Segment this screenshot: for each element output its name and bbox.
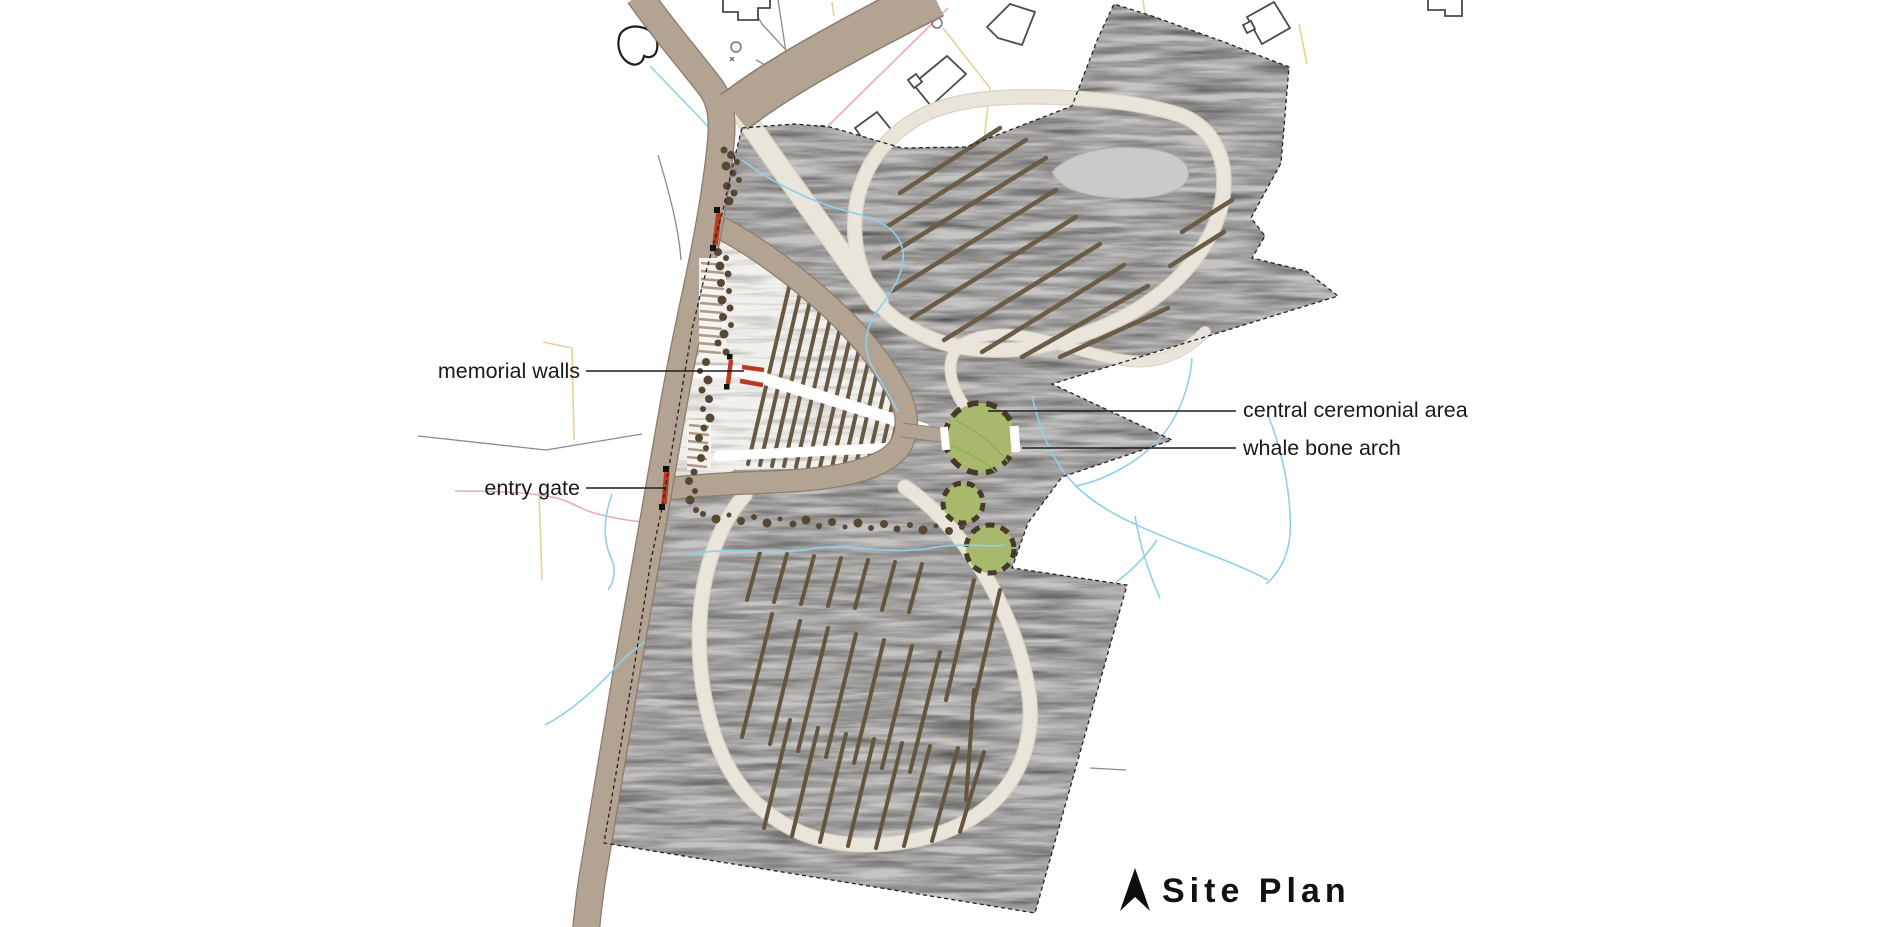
memorial-wall-bar-1 [742, 367, 764, 370]
annotation-entry-gate: entry gate [420, 477, 580, 500]
site-plan-drawing [0, 0, 1900, 927]
site-plan-page: memorial walls entry gate central ceremo… [0, 0, 1900, 927]
annotation-central-ceremonial-area: central ceremonial area [1243, 399, 1468, 422]
memorial-wall-vertical [728, 360, 731, 384]
whale-bone-arch-gap [1014, 426, 1016, 452]
annotation-memorial-walls: memorial walls [420, 360, 580, 383]
plan-title: Site Plan [1162, 872, 1351, 911]
annotation-whale-bone-arch: whale bone arch [1243, 437, 1401, 460]
